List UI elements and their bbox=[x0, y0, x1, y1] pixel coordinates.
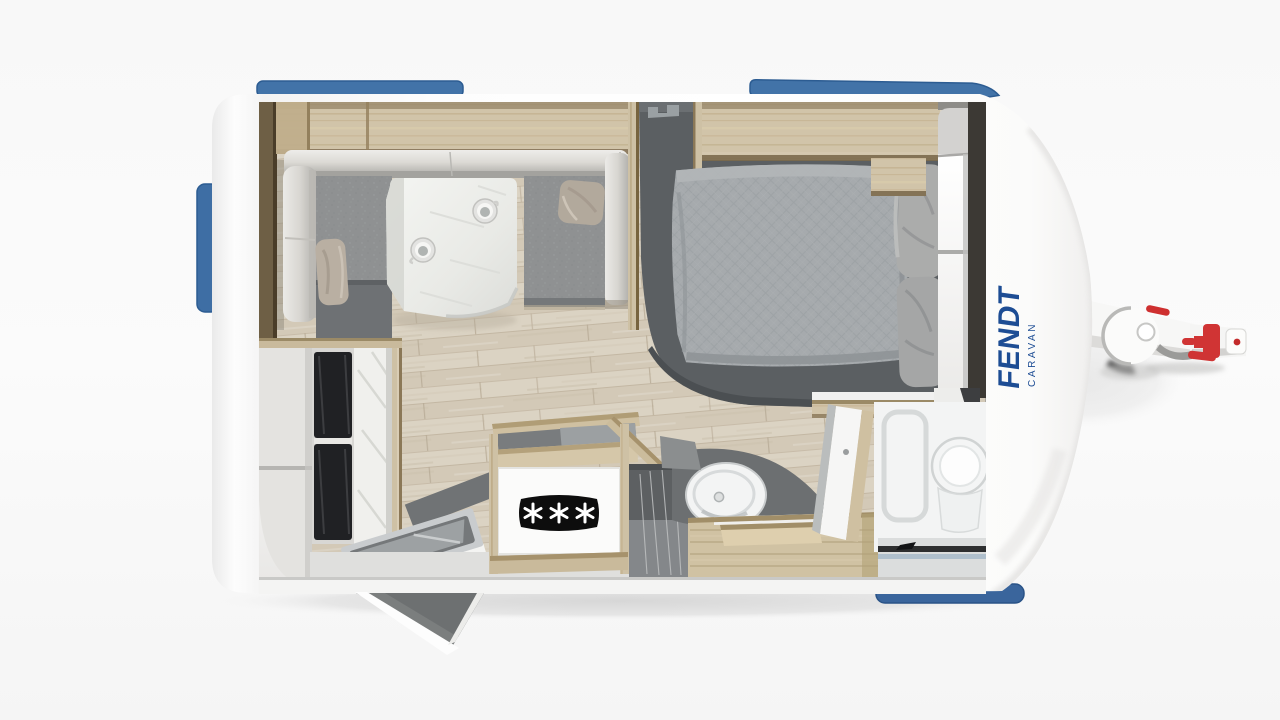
svg-text:FENDT: FENDT bbox=[993, 284, 1026, 391]
svg-text:CARAVAN: CARAVAN bbox=[1027, 322, 1038, 387]
